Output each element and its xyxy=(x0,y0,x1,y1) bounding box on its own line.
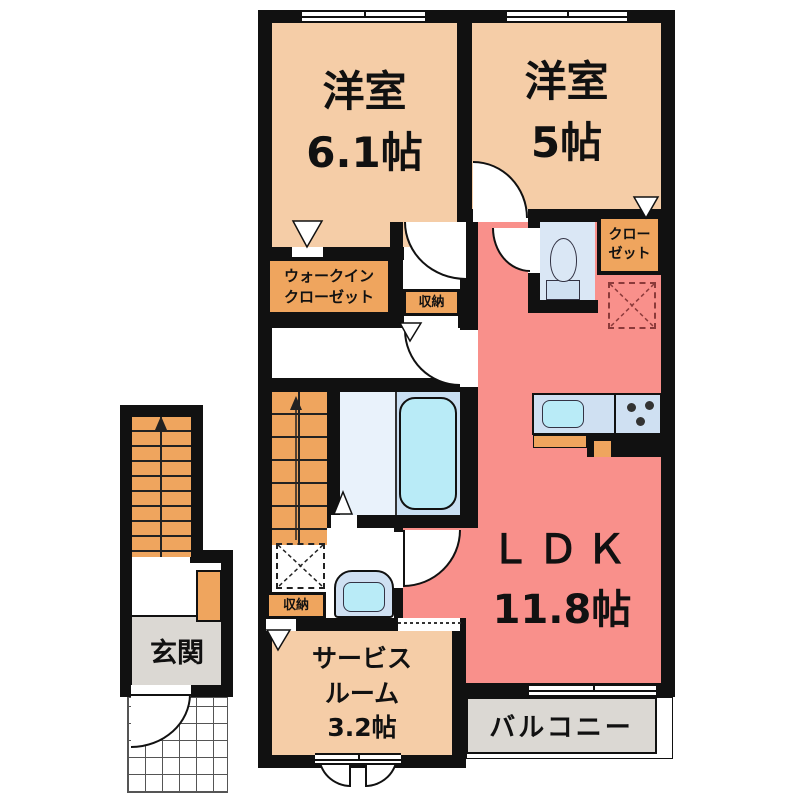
walk-in-closet-label-1: ウォークイン xyxy=(284,266,374,286)
door-opening xyxy=(331,515,357,528)
storage-hall: 収納 xyxy=(403,289,460,316)
wall xyxy=(528,300,598,313)
wall xyxy=(120,405,132,697)
bathtub-icon xyxy=(399,397,457,510)
window xyxy=(507,10,627,23)
kitchen-counter xyxy=(532,393,662,435)
stove-burner-icon xyxy=(645,401,654,410)
closet: クロー ゼット xyxy=(597,215,662,275)
kitchen-cabinet xyxy=(533,435,587,448)
entrance-floor xyxy=(132,615,222,687)
exterior-stairs xyxy=(132,417,191,557)
bedroom1-floor xyxy=(272,23,457,247)
washing-machine-space xyxy=(276,543,325,589)
storage-washroom: 収納 xyxy=(266,592,326,619)
stove-burner-icon xyxy=(627,403,636,412)
toilet-tank-icon xyxy=(546,280,580,300)
toilet-bowl-icon xyxy=(550,238,577,282)
walk-in-closet-label-2: クローゼット xyxy=(284,287,374,307)
service-room-floor xyxy=(272,630,452,755)
door-opening xyxy=(398,618,460,631)
stove-burner-icon xyxy=(636,417,645,426)
kitchen-counter-divider xyxy=(614,395,616,433)
refrigerator-space xyxy=(608,282,656,329)
wall xyxy=(327,392,340,528)
balcony-outline xyxy=(466,697,673,759)
kitchen-sink-icon xyxy=(542,400,584,428)
wall xyxy=(190,405,203,557)
storage-hall-label: 収納 xyxy=(418,294,444,312)
kitchen-unit-accent xyxy=(594,441,611,457)
door-opening xyxy=(460,330,478,387)
door-opening xyxy=(404,315,458,328)
service-room-window xyxy=(315,753,401,765)
floor-plan: バルコニー ウォークイン クローゼット クロー ゼット 収納 収納 xyxy=(0,0,800,800)
closet-label-2: ゼット xyxy=(609,245,651,264)
door-opening xyxy=(394,532,403,588)
balcony-sliding-window xyxy=(529,684,656,697)
closet-label-1: クロー xyxy=(609,226,651,245)
door-opening xyxy=(266,618,296,631)
shoe-cabinet xyxy=(196,570,222,622)
washbasin-bowl-icon xyxy=(343,582,385,612)
wall xyxy=(457,10,472,225)
wall xyxy=(661,10,675,697)
interior-stairs xyxy=(272,392,327,545)
walk-in-closet: ウォークイン クローゼット xyxy=(266,257,392,316)
window xyxy=(302,10,425,23)
storage-washroom-label: 収納 xyxy=(283,597,309,615)
door-arc-bedroom1 xyxy=(404,222,466,280)
wall xyxy=(221,550,233,697)
